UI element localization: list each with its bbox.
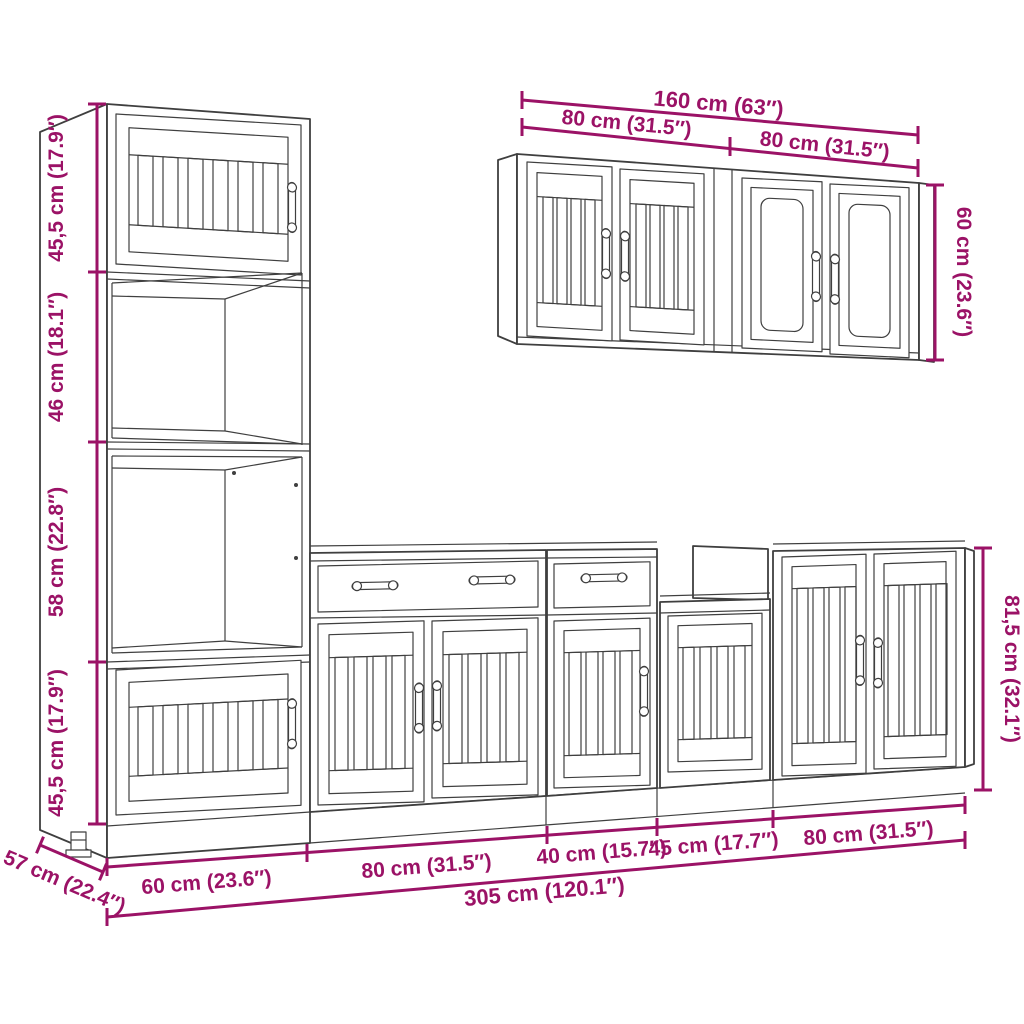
base-right-side [965, 548, 974, 767]
dim-base-height: 81,5 cm (32.1″) [974, 548, 1023, 790]
base-cabinets [310, 541, 974, 843]
dim-label-tall-section-3: 58 cm (22.8″) [45, 487, 68, 617]
door-handle [602, 228, 611, 279]
dim-label-base-60: 60 cm (23.6″) [141, 866, 273, 899]
dim-label-tall-section-2: 46 cm (18.1″) [45, 292, 68, 422]
door-handle [856, 635, 865, 685]
wall-cabinets [498, 154, 934, 362]
base-40-drawer [554, 562, 650, 608]
base-80tall-door-left [782, 554, 866, 776]
door-handle [812, 251, 821, 301]
base-80tall-door-right [874, 551, 957, 769]
base-45-door [668, 613, 762, 772]
tall-cabinet [40, 104, 310, 858]
wall-door-4-glass [830, 184, 909, 358]
base-40-door [554, 618, 650, 788]
drawer-handle [469, 575, 515, 585]
dim-label-base-height: 81,5 cm (32.1″) [1000, 595, 1023, 743]
door-handle [415, 683, 424, 733]
door-handle [621, 231, 630, 282]
dim-label-tall-section-1: 45,5 cm (17.9″) [45, 114, 68, 262]
door-handle [640, 666, 649, 716]
door-handle [874, 638, 883, 688]
base-80-drawer [318, 561, 538, 612]
wall-door-1 [527, 162, 612, 341]
tall-cabinet-bottom-door [116, 660, 301, 815]
dim-label-wall-height: 60 cm (23.6″) [952, 207, 975, 337]
door-handle [831, 254, 840, 304]
wall-cabinet-left-side [498, 154, 517, 344]
wall-door-2 [620, 169, 704, 345]
base-80-door-right [432, 618, 538, 798]
door-handle [433, 681, 442, 731]
dim-label-tall-section-4: 45,5 cm (17.9″) [45, 669, 68, 817]
door-handle [288, 182, 297, 233]
drawer-handle [581, 573, 627, 583]
wall-cabinet-right-side [919, 183, 934, 362]
base-80-door-left [318, 621, 424, 805]
kitchen-cabinet-dimension-diagram: 45,5 cm (17.9″) 46 cm (18.1″) 58 cm (22.… [0, 0, 1024, 1024]
tall-cabinet-top-door [116, 114, 301, 275]
wall-door-3-glass [742, 178, 822, 352]
door-handle [288, 699, 297, 749]
diagram-canvas: 45,5 cm (17.9″) 46 cm (18.1″) 58 cm (22.… [0, 0, 1024, 1024]
drawer-handle [352, 581, 398, 591]
back-panel [693, 546, 768, 600]
dim-label-base-80a: 80 cm (31.5″) [361, 850, 493, 883]
dim-label-base-45: 45 cm (17.7″) [648, 828, 780, 861]
